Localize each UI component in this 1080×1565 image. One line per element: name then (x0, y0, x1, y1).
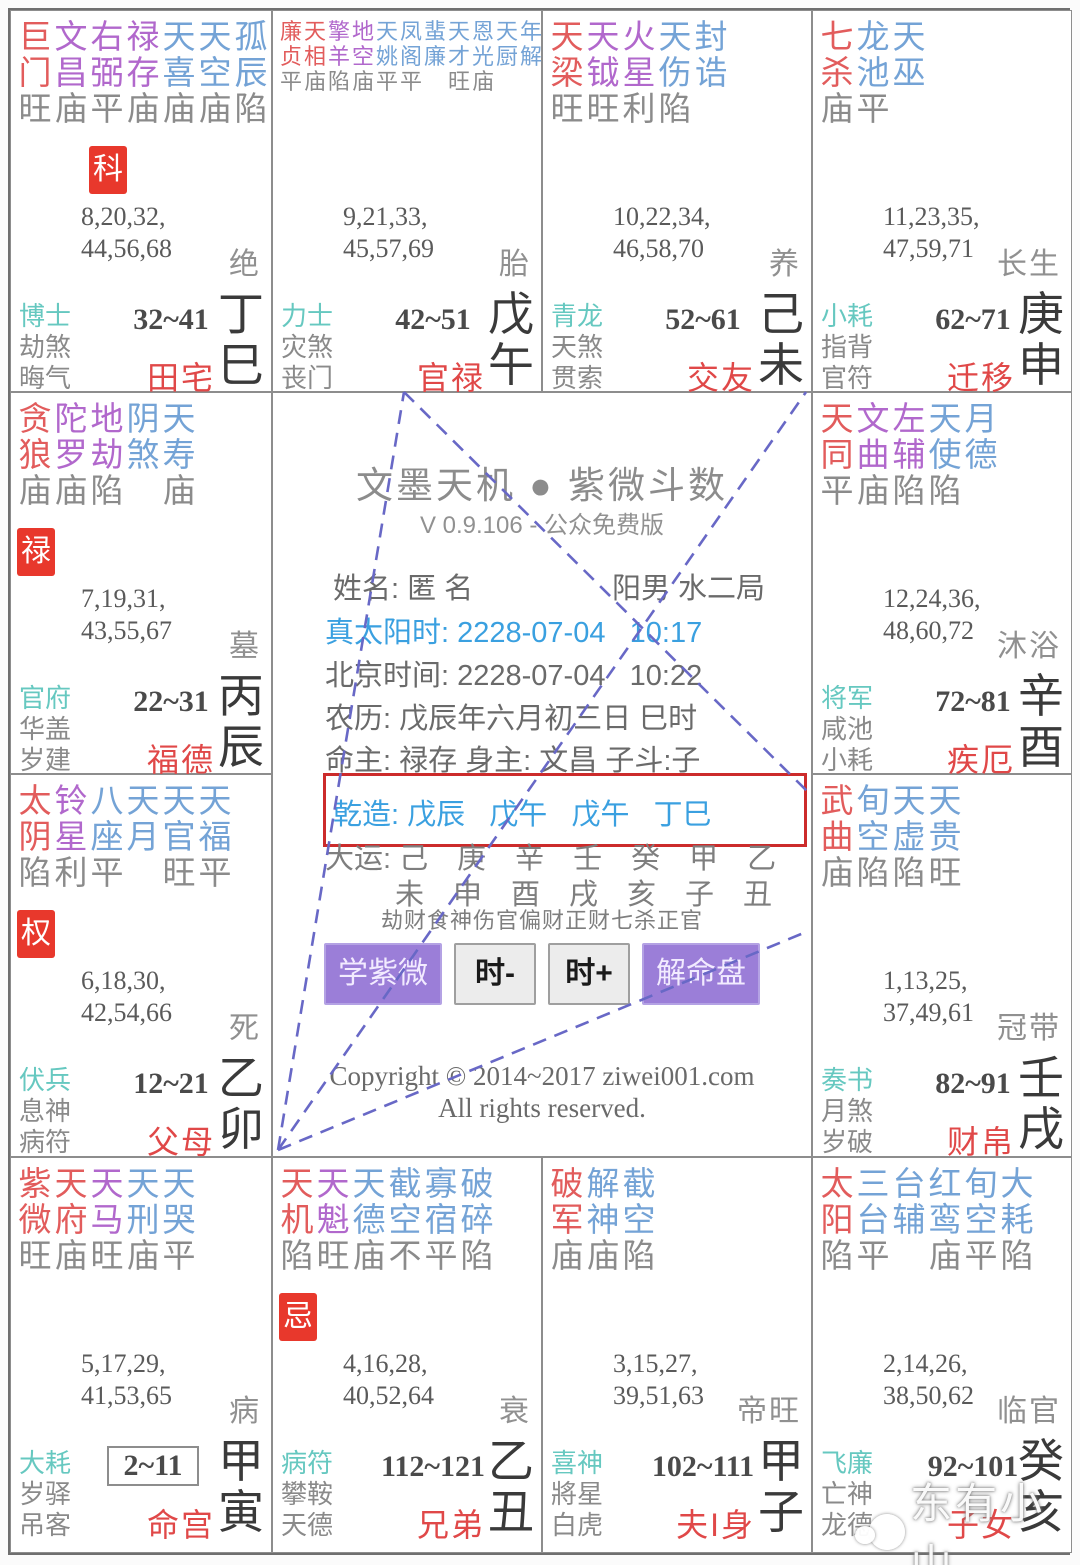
transform-badge-忌: 忌 (279, 1293, 317, 1341)
star-天相: 天相庙 (303, 19, 327, 94)
branch-char: 子 (757, 1487, 805, 1538)
ages-line-1: 9,21,33, (343, 201, 434, 233)
branch-char: 未 (757, 340, 805, 391)
ages-line-1: 4,16,28, (343, 1348, 434, 1380)
palace-name: 交友 (687, 353, 755, 399)
branch-char: 戌 (1017, 1104, 1065, 1155)
app-title: 文墨天机 ● 紫微斗数 (273, 455, 811, 509)
ages-line-2: 43,55,67 (81, 615, 172, 647)
beijing-time: 北京时间: 2228-07-04 10:22 (273, 652, 811, 694)
palace-gods: 将军 咸池 小耗 (821, 683, 873, 776)
watermark-text: 东有小山 (910, 1470, 1080, 1565)
life-stage-label: 墓 (229, 621, 261, 665)
palace-cell-chen[interactable]: 贪狼庙陀罗庙地劫陷阴煞 天寿庙 禄 7,19,31, 43,55,67 墓 官府… (10, 392, 272, 774)
yearly-ages: 1,13,25, 37,49,61 (883, 965, 974, 1029)
name-row: 姓名: 匿 名 阳男 水二局 (273, 565, 811, 607)
star-廉贞: 廉贞平 (279, 19, 303, 94)
star-八座: 八座平 (89, 783, 125, 891)
true-solar-time: 真太阳时: 2228-07-04 10:17 (273, 609, 811, 651)
life-stage-label: 绝 (229, 239, 261, 283)
yearly-ages: 11,23,35, 47,59,71 (883, 201, 980, 265)
god-yearly: 贯索 (551, 363, 603, 394)
god-sha: 息神 (19, 1096, 71, 1127)
yearly-ages: 9,21,33, 45,57,69 (343, 201, 434, 265)
ages-line-1: 10,22,34, (613, 201, 711, 233)
person-name: 姓名: 匿 名 (333, 565, 473, 607)
ages-line-1: 6,18,30, (81, 965, 172, 997)
stem-char: 甲 (757, 1436, 805, 1487)
star-天机: 天机陷 (279, 1166, 315, 1274)
god-yearly: 岁建 (19, 745, 71, 776)
stem-branch: 辛 酉 (1017, 671, 1065, 773)
palace-name: 夫I身 (676, 1500, 755, 1546)
ages-line-2: 37,49,61 (883, 997, 974, 1029)
branch-char: 申 (1017, 340, 1065, 391)
god-yearly: 病符 (19, 1127, 71, 1158)
star-天贵: 天贵旺 (927, 783, 963, 891)
star-寡宿: 寡宿平 (423, 1166, 459, 1274)
life-stage-label: 养 (769, 239, 801, 283)
yearly-ages: 5,17,29, 41,53,65 (81, 1348, 172, 1412)
ages-line-2: 39,51,63 (613, 1380, 704, 1412)
ages-line-2: 48,60,72 (883, 615, 981, 647)
stem-char: 丙 (217, 671, 265, 722)
star-list: 破军庙解神庙截空陷 (549, 1166, 657, 1274)
star-天同: 天同平 (819, 401, 855, 509)
watermark: 东有小山 (855, 1470, 1080, 1565)
star-天虚: 天虚陷 (891, 783, 927, 891)
ages-line-2: 46,58,70 (613, 233, 711, 265)
god-yearly: 天德 (281, 1510, 333, 1541)
palace-gods: 博士 劫煞 晦气 (19, 301, 71, 394)
star-红鸾: 红鸾庙 (927, 1166, 963, 1274)
stem-char: 庚 (1017, 289, 1065, 340)
palace-cell-mao[interactable]: 太阴陷铃星利八座平天月 天官旺天福平 权 6,18,30, 42,54,66 死… (10, 774, 272, 1157)
stem-branch: 甲 寅 (217, 1436, 265, 1538)
stem-branch: 丁 巳 (217, 289, 265, 391)
star-孤辰: 孤辰陷 (233, 19, 269, 127)
palace-cell-xu[interactable]: 武曲庙旬空陷天虚陷天贵旺 1,13,25, 37,49,61 冠带 奏书 月煞 … (812, 774, 1072, 1157)
yearly-ages: 3,15,27, 39,51,63 (613, 1348, 704, 1412)
star-天马: 天马旺 (89, 1166, 125, 1274)
star-旬空: 旬空平 (963, 1166, 999, 1274)
star-list: 太阴陷铃星利八座平天月 天官旺天福平 (17, 783, 233, 891)
star-蜚廉: 蜚廉 (423, 19, 447, 94)
star-天梁: 天梁旺 (549, 19, 585, 127)
god-sha: 攀鞍 (281, 1479, 333, 1510)
god-sha: 將星 (551, 1479, 603, 1510)
star-天钺: 天钺旺 (585, 19, 621, 127)
star-阴煞: 阴煞 (125, 401, 161, 509)
star-list: 天梁旺天钺旺火星利天伤陷封诰 (549, 19, 729, 127)
stem-char: 壬 (1017, 1053, 1065, 1104)
stem-branch: 戊 午 (487, 289, 535, 391)
branch-char: 卯 (217, 1104, 265, 1155)
palace-cell-chou[interactable]: 天机陷天魁旺天德庙截空不寡宿平破碎陷 忌 4,16,28, 40,52,64 衰… (272, 1157, 542, 1553)
god-year-lord: 将军 (821, 683, 873, 714)
button-解命盘[interactable]: 解命盘 (642, 943, 760, 1005)
life-stage-label: 病 (229, 1386, 261, 1430)
god-year-lord: 大耗 (19, 1448, 71, 1479)
star-地劫: 地劫陷 (89, 401, 125, 509)
stem-branch: 乙 丑 (487, 1436, 535, 1538)
stem-char: 己 (757, 289, 805, 340)
stem-char: 甲 (217, 1436, 265, 1487)
palace-gods: 奏书 月煞 岁破 (821, 1065, 873, 1158)
star-天喜: 天喜庙 (161, 19, 197, 127)
star-恩光: 恩光庙 (471, 19, 495, 94)
palace-name: 兄弟 (417, 1500, 485, 1546)
ages-line-2: 42,54,66 (81, 997, 172, 1029)
life-stage-label: 长生 (997, 239, 1061, 283)
star-天官: 天官旺 (161, 783, 197, 891)
star-太阳: 太阳陷 (819, 1166, 855, 1274)
star-天哭: 天哭平 (161, 1166, 197, 1274)
chart-board: 文墨天机 ● 紫微斗数 V 0.9.106 - 公众免费版 姓名: 匿 名 阳男… (8, 8, 1070, 1555)
lunar-date: 农历: 戊辰年六月初三日 巳时 (273, 695, 811, 737)
yearly-ages: 4,16,28, 40,52,64 (343, 1348, 434, 1412)
star-年解: 年解 (519, 19, 543, 94)
palace-gods: 小耗 指背 官符 (821, 301, 873, 394)
star-凤阁: 凤阁平 (399, 19, 423, 94)
stem-branch: 甲 子 (757, 1436, 805, 1538)
god-yearly: 小耗 (821, 745, 873, 776)
star-大耗: 大耗陷 (999, 1166, 1035, 1274)
life-stage-label: 衰 (499, 1386, 531, 1430)
god-yearly: 晦气 (19, 363, 71, 394)
button-学紫微[interactable]: 学紫微 (324, 943, 442, 1005)
life-stage-label: 帝旺 (737, 1386, 801, 1430)
god-year-lord: 博士 (19, 301, 71, 332)
palace-gods: 病符 攀鞍 天德 (281, 1448, 333, 1541)
god-yearly: 白虎 (551, 1510, 603, 1541)
ages-line-1: 7,19,31, (81, 583, 172, 615)
stem-branch: 乙 卯 (217, 1053, 265, 1155)
star-七杀: 七杀庙 (819, 19, 855, 127)
ages-line-2: 40,52,64 (343, 1380, 434, 1412)
star-紫微: 紫微旺 (17, 1166, 53, 1274)
star-list: 巨门旺文昌庙右弼平禄存庙天喜庙天空庙孤辰陷 (17, 19, 269, 127)
stem-branch: 庚 申 (1017, 289, 1065, 391)
qianzao-pillars: 乾造: 戊辰 戊午 戊午 丁巳 (273, 791, 811, 833)
palace-cell-zi[interactable]: 破军庙解神庙截空陷 3,15,27, 39,51,63 帝旺 喜神 將星 白虎 … (542, 1157, 812, 1553)
ten-gods-row: 劫财食神伤官偏财正财七杀正官 (273, 903, 811, 935)
ages-line-1: 11,23,35, (883, 201, 980, 233)
yearly-ages: 8,20,32, 44,56,68 (81, 201, 172, 265)
rights-line: All rights reserved. (273, 1093, 811, 1124)
god-year-lord: 小耗 (821, 301, 873, 332)
star-list: 武曲庙旬空陷天虚陷天贵旺 (819, 783, 963, 891)
stem-char: 丁 (217, 289, 265, 340)
ages-line-1: 5,17,29, (81, 1348, 172, 1380)
star-天伤: 天伤陷 (657, 19, 693, 127)
ages-line-1: 8,20,32, (81, 201, 172, 233)
god-sha: 劫煞 (19, 332, 71, 363)
star-旬空: 旬空陷 (855, 783, 891, 891)
yearly-ages: 6,18,30, 42,54,66 (81, 965, 172, 1029)
god-year-lord: 伏兵 (19, 1065, 71, 1096)
god-year-lord: 奏书 (821, 1065, 873, 1096)
button-时+[interactable]: 时+ (548, 943, 630, 1005)
star-天寿: 天寿庙 (161, 401, 197, 509)
star-天巫: 天巫 (891, 19, 927, 127)
transform-badge-科: 科 (89, 146, 127, 194)
decade-range: 42~51 (368, 303, 498, 337)
star-天月: 天月 (125, 783, 161, 891)
star-文曲: 文曲庙 (855, 401, 891, 509)
life-stage-label: 临官 (997, 1386, 1061, 1430)
god-yearly: 丧门 (281, 363, 333, 394)
palace-cell-si[interactable]: 巨门旺文昌庙右弼平禄存庙天喜庙天空庙孤辰陷 科 8,20,32, 44,56,6… (10, 10, 272, 392)
god-yearly: 岁破 (821, 1127, 873, 1158)
palace-cell-yin[interactable]: 紫微旺天府庙天马旺天刑庙天哭平 5,17,29, 41,53,65 病 大耗 岁… (10, 1157, 272, 1553)
palace-cell-wei[interactable]: 天梁旺天钺旺火星利天伤陷封诰 10,22,34, 46,58,70 养 青龙 天… (542, 10, 812, 392)
stem-branch: 丙 辰 (217, 671, 265, 773)
star-天空: 天空庙 (197, 19, 233, 127)
transform-badge-权: 权 (17, 910, 55, 958)
yearly-ages: 2,14,26, 38,50,62 (883, 1348, 974, 1412)
star-破军: 破军庙 (549, 1166, 585, 1274)
star-封诰: 封诰 (693, 19, 729, 127)
stem-char: 乙 (217, 1053, 265, 1104)
ages-line-2: 47,59,71 (883, 233, 980, 265)
star-擎羊: 擎羊陷 (327, 19, 351, 94)
star-铃星: 铃星利 (53, 783, 89, 891)
branch-char: 丑 (487, 1487, 535, 1538)
palace-cell-shen[interactable]: 七杀庙龙池平天巫 11,23,35, 47,59,71 长生 小耗 指背 官符 … (812, 10, 1072, 392)
star-左辅: 左辅陷 (891, 401, 927, 509)
app-version: V 0.9.106 - 公众免费版 (273, 505, 811, 540)
star-list: 天同平文曲庙左辅陷天使陷月德 (819, 401, 999, 509)
yearly-ages: 10,22,34, 46,58,70 (613, 201, 711, 265)
god-year-lord: 力士 (281, 301, 333, 332)
star-破碎: 破碎陷 (459, 1166, 495, 1274)
branch-char: 辰 (217, 722, 265, 773)
palace-gods: 伏兵 息神 病符 (19, 1065, 71, 1158)
center-info-panel: 文墨天机 ● 紫微斗数 V 0.9.106 - 公众免费版 姓名: 匿 名 阳男… (272, 392, 812, 1157)
god-year-lord: 病符 (281, 1448, 333, 1479)
star-天府: 天府庙 (53, 1166, 89, 1274)
star-右弼: 右弼平 (89, 19, 125, 127)
branch-char: 午 (487, 340, 535, 391)
star-三台: 三台平 (855, 1166, 891, 1274)
watermark-logo-icon (855, 1508, 904, 1554)
god-sha: 华盖 (19, 714, 71, 745)
decade-range: 102~111 (638, 1450, 768, 1484)
god-sha: 灾煞 (281, 332, 333, 363)
life-stage-label: 死 (229, 1003, 261, 1047)
copyright-line: Copyright © 2014~2017 ziwei001.com (273, 1061, 811, 1092)
ages-line-1: 1,13,25, (883, 965, 974, 997)
star-天姚: 天姚平 (375, 19, 399, 94)
stem-branch: 己 未 (757, 289, 805, 391)
star-火星: 火星利 (621, 19, 657, 127)
decade-range: 112~121 (368, 1450, 498, 1484)
star-陀罗: 陀罗庙 (53, 401, 89, 509)
star-天福: 天福平 (197, 783, 233, 891)
life-stage-label: 胎 (499, 239, 531, 283)
transform-badge-禄: 禄 (17, 528, 55, 576)
palace-name: 官禄 (417, 353, 485, 399)
palace-gods: 力士 灾煞 丧门 (281, 301, 333, 394)
branch-char: 酉 (1017, 722, 1065, 773)
star-解神: 解神庙 (585, 1166, 621, 1274)
palace-cell-you[interactable]: 天同平文曲庙左辅陷天使陷月德 12,24,36, 48,60,72 沐浴 将军 … (812, 392, 1072, 774)
star-截空: 截空陷 (621, 1166, 657, 1274)
god-yearly: 吊客 (19, 1510, 71, 1541)
decade-range: 2~11 (107, 1446, 199, 1486)
palace-gods: 喜神 將星 白虎 (551, 1448, 603, 1541)
god-sha: 咸池 (821, 714, 873, 745)
ages-line-2: 45,57,69 (343, 233, 434, 265)
star-天德: 天德庙 (351, 1166, 387, 1274)
star-贪狼: 贪狼庙 (17, 401, 53, 509)
star-list: 贪狼庙陀罗庙地劫陷阴煞 天寿庙 (17, 401, 197, 509)
ages-line-1: 3,15,27, (613, 1348, 704, 1380)
ages-line-1: 12,24,36, (883, 583, 981, 615)
star-文昌: 文昌庙 (53, 19, 89, 127)
star-天刑: 天刑庙 (125, 1166, 161, 1274)
stem-char: 乙 (487, 1436, 535, 1487)
god-year-lord: 青龙 (551, 301, 603, 332)
star-list: 太阳陷三台平台辅 红鸾庙旬空平大耗陷 (819, 1166, 1035, 1274)
star-list: 紫微旺天府庙天马旺天刑庙天哭平 (17, 1166, 197, 1274)
star-武曲: 武曲庙 (819, 783, 855, 891)
branch-char: 巳 (217, 340, 265, 391)
god-sha: 月煞 (821, 1096, 873, 1127)
life-stage-label: 沐浴 (997, 621, 1061, 665)
ziwei-chart-app: 文墨天机 ● 紫微斗数 V 0.9.106 - 公众免费版 姓名: 匿 名 阳男… (0, 0, 1080, 1565)
decade-range: 52~61 (638, 303, 768, 337)
stem-char: 辛 (1017, 671, 1065, 722)
star-天魁: 天魁旺 (315, 1166, 351, 1274)
star-截空: 截空不 (387, 1166, 423, 1274)
god-year-lord: 喜神 (551, 1448, 603, 1479)
yearly-ages: 12,24,36, 48,60,72 (883, 583, 981, 647)
star-list: 七杀庙龙池平天巫 (819, 19, 927, 127)
star-天使: 天使陷 (927, 401, 963, 509)
god-sha: 指背 (821, 332, 873, 363)
palace-gods: 青龙 天煞 贯索 (551, 301, 603, 394)
star-龙池: 龙池平 (855, 19, 891, 127)
ages-line-1: 2,14,26, (883, 1348, 974, 1380)
palace-gods: 大耗 岁驿 吊客 (19, 1448, 71, 1541)
ages-line-2: 44,56,68 (81, 233, 172, 265)
god-year-lord: 官府 (19, 683, 71, 714)
stem-branch: 壬 戌 (1017, 1053, 1065, 1155)
star-地空: 地空庙 (351, 19, 375, 94)
palace-gods: 官府 华盖 岁建 (19, 683, 71, 776)
star-禄存: 禄存庙 (125, 19, 161, 127)
palace-name: 命宫 (147, 1500, 215, 1546)
palace-cell-wu[interactable]: 廉贞平天相庙擎羊陷地空庙天姚平凤阁平蜚廉 天才旺恩光庙天厨 年解 9,21,33… (272, 10, 542, 392)
branch-char: 寅 (217, 1487, 265, 1538)
ages-line-2: 38,50,62 (883, 1380, 974, 1412)
gender-bureau: 阳男 水二局 (612, 565, 765, 607)
star-list: 天机陷天魁旺天德庙截空不寡宿平破碎陷 (279, 1166, 495, 1274)
star-台辅: 台辅 (891, 1166, 927, 1274)
star-天才: 天才旺 (447, 19, 471, 94)
star-月德: 月德 (963, 401, 999, 509)
yearly-ages: 7,19,31, 43,55,67 (81, 583, 172, 647)
god-sha: 天煞 (551, 332, 603, 363)
button-时-[interactable]: 时- (454, 943, 536, 1005)
action-button-row: 学紫微时-时+解命盘 (273, 943, 811, 1005)
god-yearly: 官符 (821, 363, 873, 394)
god-sha: 岁驿 (19, 1479, 71, 1510)
star-天厨: 天厨 (495, 19, 519, 94)
star-list: 廉贞平天相庙擎羊陷地空庙天姚平凤阁平蜚廉 天才旺恩光庙天厨 年解 (279, 19, 543, 94)
star-巨门: 巨门旺 (17, 19, 53, 127)
star-太阴: 太阴陷 (17, 783, 53, 891)
ages-line-2: 41,53,65 (81, 1380, 172, 1412)
stem-char: 戊 (487, 289, 535, 340)
life-stage-label: 冠带 (997, 1003, 1061, 1047)
